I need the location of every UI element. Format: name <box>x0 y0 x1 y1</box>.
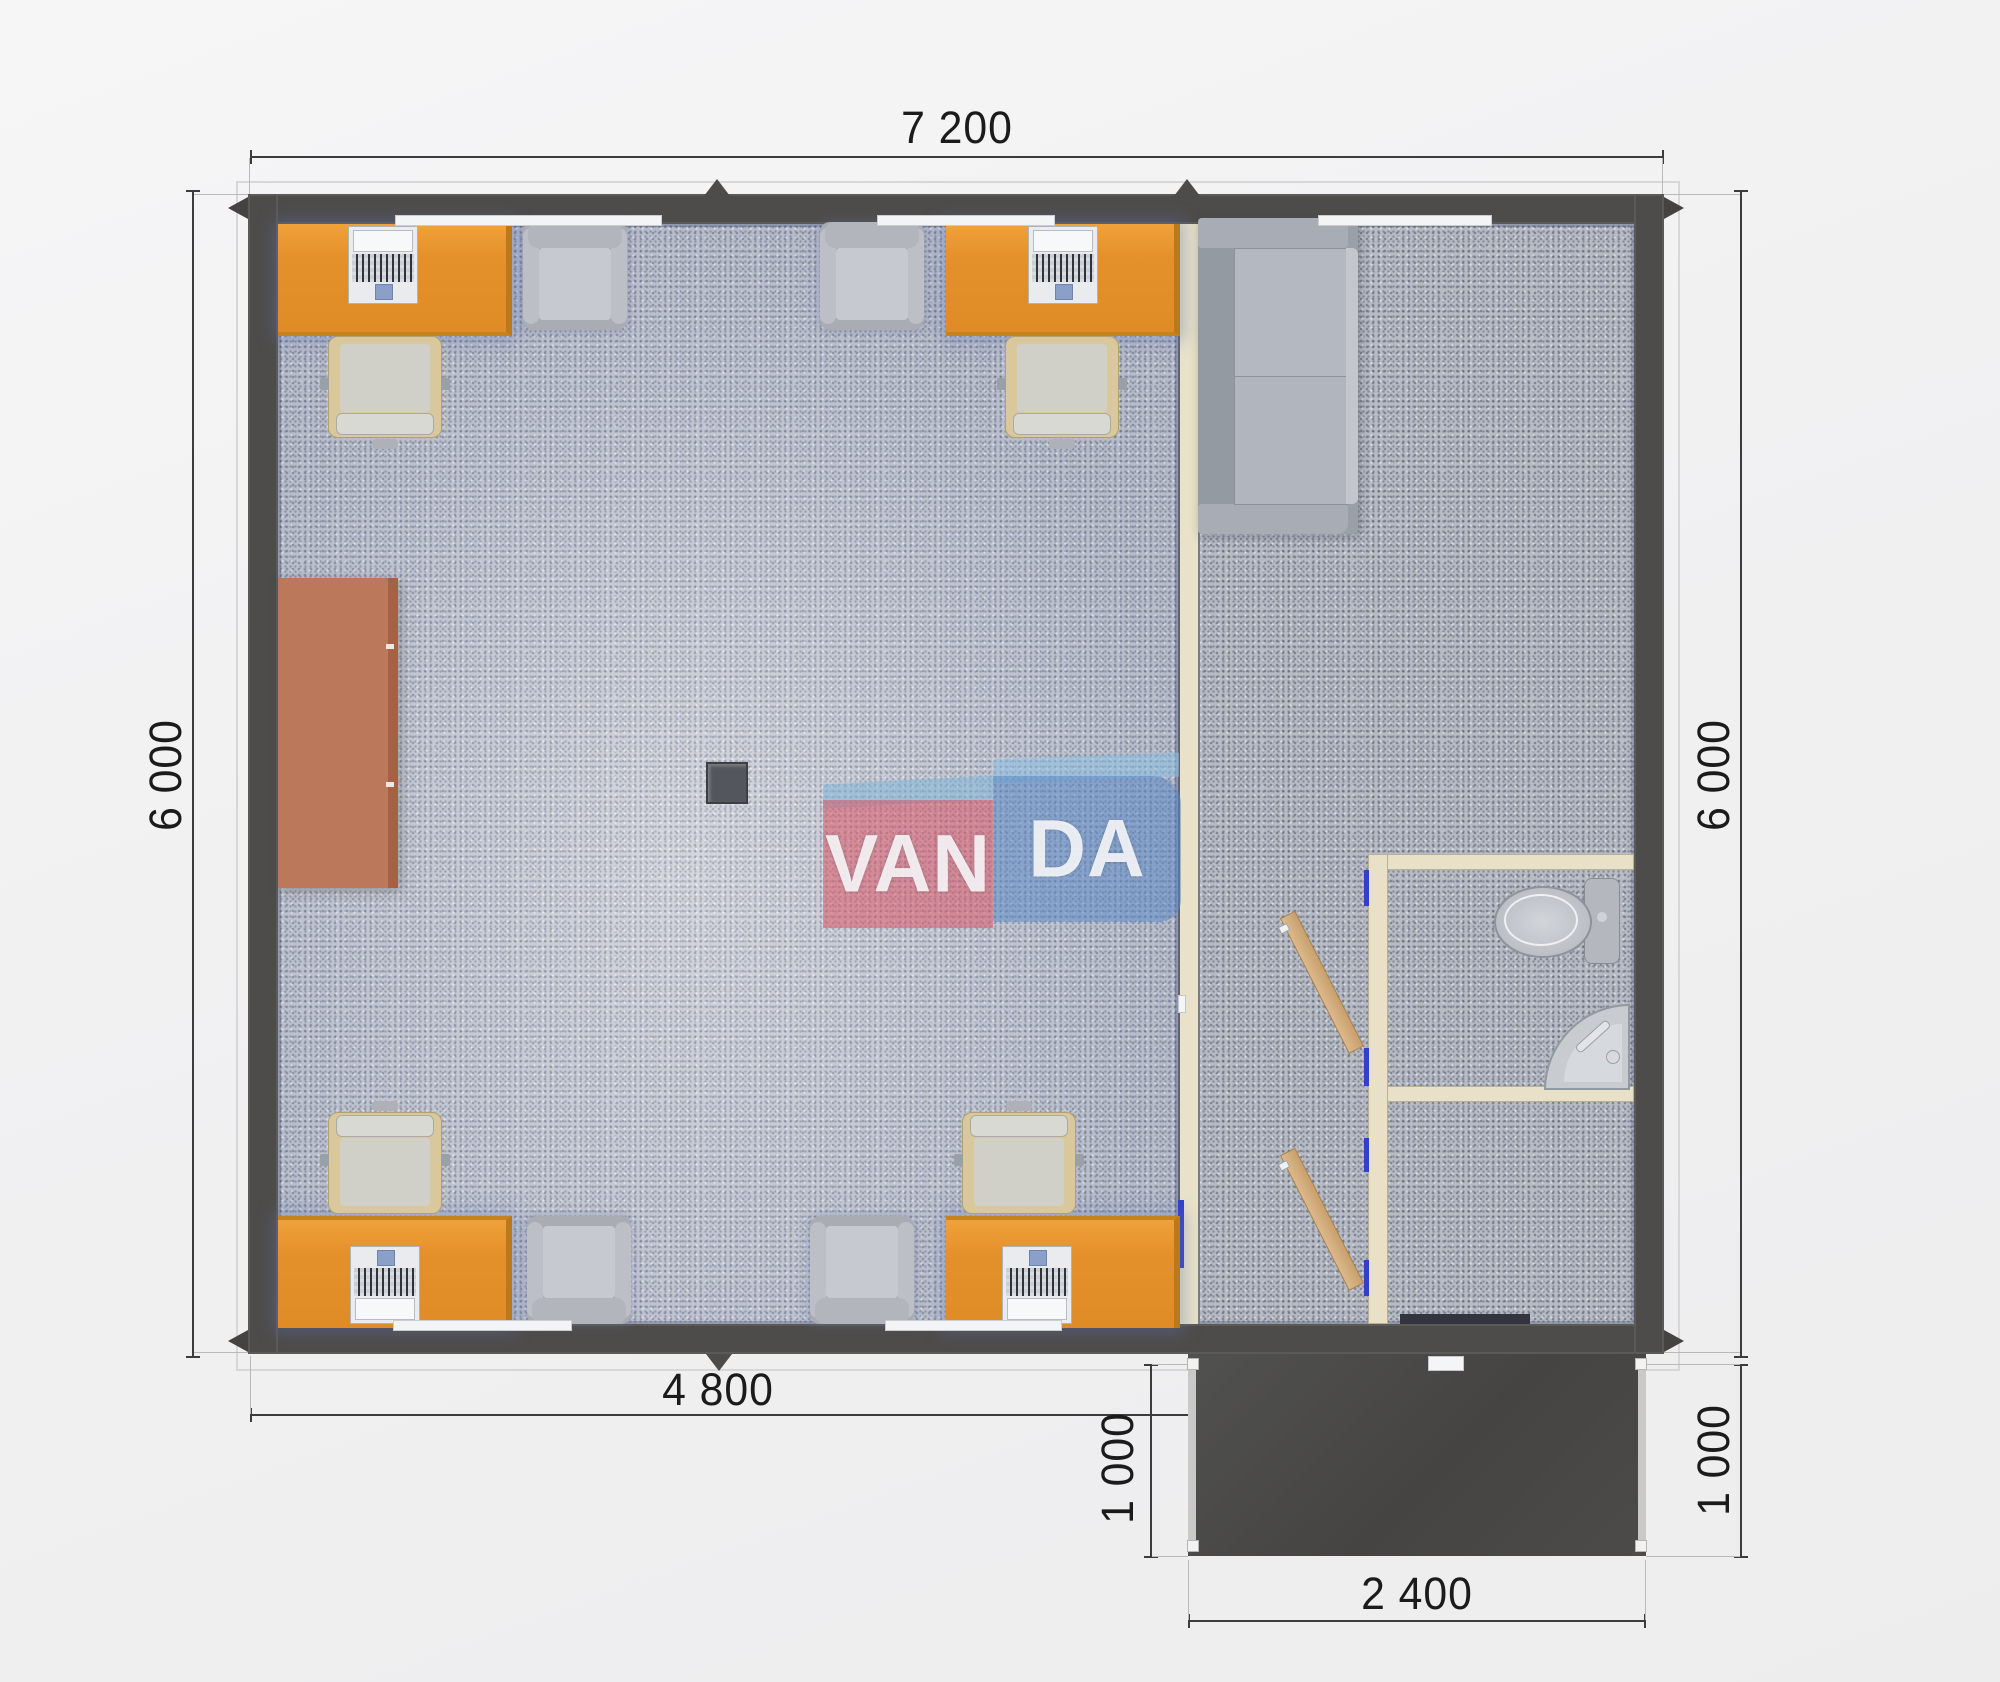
porch-rail-left <box>1188 1362 1196 1548</box>
dim-label-left: 6 000 <box>142 680 190 870</box>
partition-wall <box>1178 224 1200 1324</box>
dim-label-right: 6 000 <box>1690 680 1738 870</box>
floor-plan-canvas: VAN DA 7 200 6 000 6 000 4 800 1 000 1 0… <box>0 0 2000 1682</box>
window-top-3 <box>1318 215 1492 226</box>
desk-top-left <box>278 224 512 336</box>
dim-label-porch-left: 1 000 <box>1094 1373 1142 1563</box>
wc-wall-north <box>1368 854 1634 870</box>
dim-label-top: 7 200 <box>862 104 1052 152</box>
panel-joint-icon <box>706 1354 732 1371</box>
armchair-top-1 <box>523 222 627 330</box>
dim-line-right <box>1740 190 1742 1358</box>
desk-chair-top-right <box>1005 336 1119 438</box>
dim-label-bottom: 4 800 <box>623 1366 813 1414</box>
armchair-bottom-1 <box>527 1216 631 1324</box>
laptop-screen <box>353 230 413 252</box>
desk-bottom-right <box>946 1216 1180 1328</box>
wc-door-frame <box>1364 1048 1369 1086</box>
armchair-top-2 <box>820 222 924 330</box>
window-top-1 <box>395 215 662 226</box>
desk-bottom-left <box>278 1216 512 1328</box>
desk-chair-bottom-right <box>962 1112 1076 1214</box>
window-top-2 <box>877 215 1055 226</box>
corner-mark-icon <box>1664 1330 1684 1352</box>
laptop-icon <box>348 226 418 304</box>
handle-icon <box>386 644 394 649</box>
corner-mark-icon <box>1664 197 1684 219</box>
dim-label-porch-bottom: 2 400 <box>1322 1570 1512 1618</box>
laptop-icon <box>1028 226 1098 304</box>
sofa <box>1198 218 1358 534</box>
window-bottom-1 <box>393 1320 572 1331</box>
corner-mark-icon <box>228 1330 248 1352</box>
corner-mark-icon <box>228 197 248 219</box>
wall-right <box>1634 194 1664 1354</box>
panel-joint-icon <box>704 179 730 196</box>
store-door-frame <box>1364 1260 1369 1296</box>
dim-line-porch-left <box>1150 1364 1152 1558</box>
desk-top-right <box>946 224 1180 336</box>
entrance-porch <box>1188 1354 1646 1556</box>
sideboard <box>278 578 398 888</box>
laptop-icon <box>350 1246 420 1324</box>
desk-chair-bottom-left <box>328 1112 442 1214</box>
laptop-mouse <box>375 284 393 300</box>
toilet-icon <box>1494 886 1624 966</box>
panel-joint-icon <box>1174 179 1200 196</box>
armchair-bottom-2 <box>810 1216 914 1324</box>
laptop-icon <box>1002 1246 1072 1324</box>
handle-icon <box>386 782 394 787</box>
laptop-keyboard <box>352 254 414 282</box>
partition-mark <box>1178 995 1186 1013</box>
wall-left <box>248 194 278 1354</box>
dim-label-porch-right: 1 000 <box>1690 1365 1738 1555</box>
porch-rail-right <box>1638 1362 1646 1548</box>
wc-door-frame <box>1364 870 1369 906</box>
dim-line-porch-right <box>1740 1364 1742 1558</box>
dim-line-top <box>250 156 1664 158</box>
desk-chair-top-left <box>328 336 442 438</box>
entry-door-threshold <box>1400 1314 1530 1324</box>
window-bottom-2 <box>885 1320 1062 1331</box>
store-door-frame <box>1364 1138 1369 1172</box>
entry-door-step <box>1428 1356 1464 1371</box>
dim-line-porch-bottom <box>1188 1620 1646 1622</box>
dim-line-left <box>192 190 194 1358</box>
wc-wall-west <box>1368 854 1388 1324</box>
stove-unit <box>706 762 748 804</box>
